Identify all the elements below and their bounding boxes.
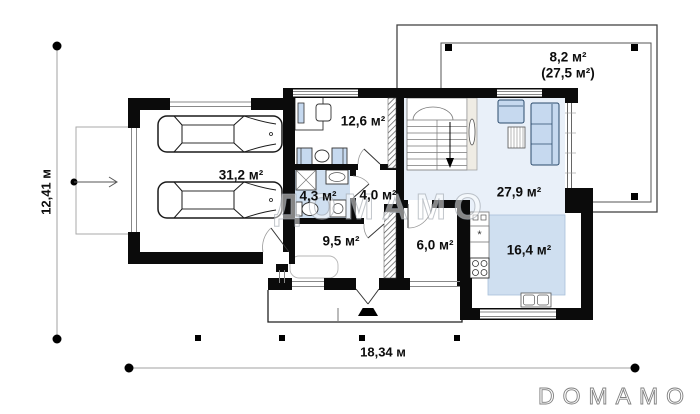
coffee-table-icon	[508, 127, 525, 148]
terrace-total-area-label: (27,5 м²)	[541, 66, 595, 81]
car-icon	[158, 182, 282, 218]
room-label-entrance-hall: 9,5 м²	[323, 234, 360, 249]
round-table-icon	[315, 150, 329, 162]
floor-plan-drawing: *	[0, 0, 700, 414]
width-dimension-label: 18,34 м	[360, 345, 406, 360]
room-label-bathroom: 4,3 м²	[300, 189, 337, 204]
armchair-icon	[498, 100, 524, 123]
logo-watermark: DOMAMO	[538, 383, 692, 409]
depth-dimension-label: 12,41 м	[39, 169, 54, 215]
room-label-office: 12,6 м²	[341, 114, 386, 129]
fridge-symbol: *	[477, 229, 482, 241]
room-label-kitchen: 16,4 м²	[507, 243, 552, 258]
sofa-icon	[531, 103, 559, 165]
staircase	[407, 98, 477, 170]
room-label-living-room: 27,9 м²	[497, 185, 542, 200]
room-label-pantry: 6,0 м²	[417, 238, 454, 253]
floor-plan-page: *	[0, 0, 700, 414]
terrace-area-label: 8,2 м²	[550, 50, 587, 65]
hatched-partition	[388, 98, 396, 168]
room-label-hallway: 4,0 м²	[360, 188, 397, 203]
car-icon	[158, 116, 282, 152]
driveway	[71, 127, 130, 234]
room-label-garage: 31,2 м²	[219, 168, 264, 183]
